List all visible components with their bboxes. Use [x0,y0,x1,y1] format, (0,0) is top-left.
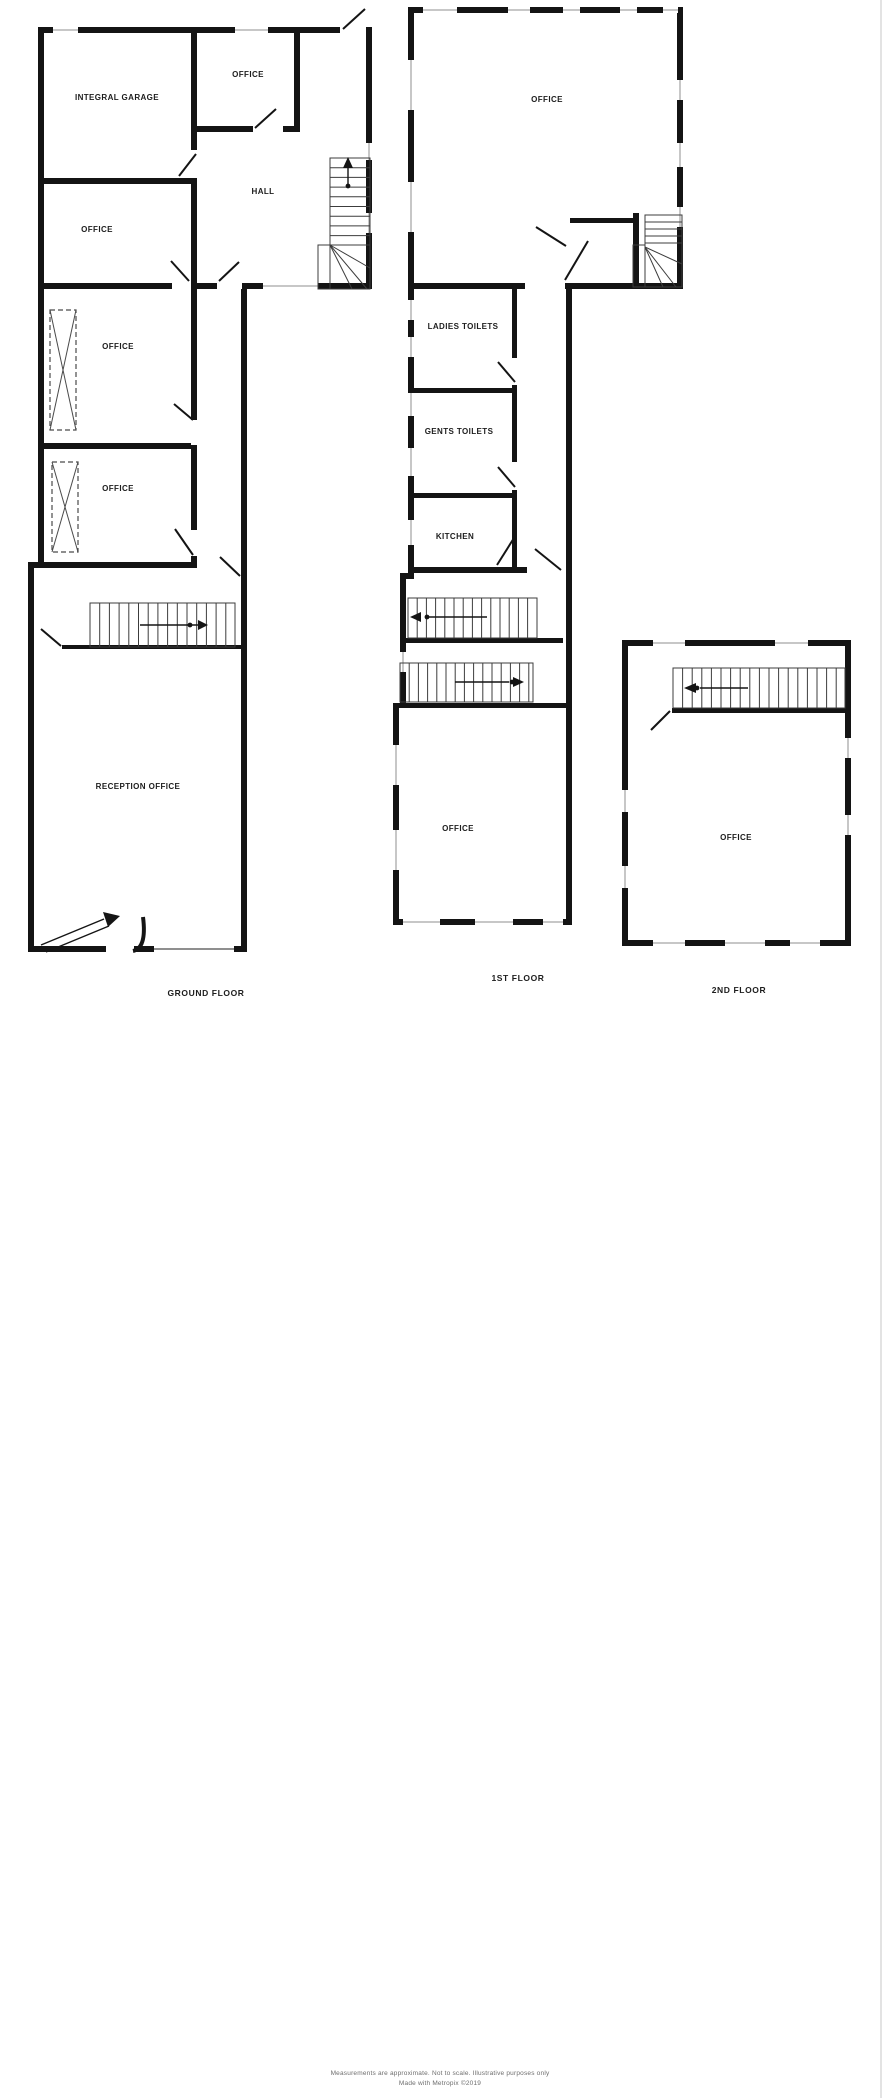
floorplan-drawing: INTEGRAL GARAGE OFFICE HALL OFFICE OFFIC… [0,0,886,2098]
floor-label-ground: GROUND FLOOR [167,988,244,998]
room-label-integral-garage: INTEGRAL GARAGE [75,93,159,102]
room-label-hall: HALL [252,187,275,196]
room-label-kitchen: KITCHEN [436,532,474,541]
floor-label-first: 1ST FLOOR [491,973,544,983]
second-floor-doors [651,711,670,730]
ground-floor-plan: INTEGRAL GARAGE OFFICE HALL OFFICE OFFIC… [28,9,372,998]
ground-floor-doors [41,9,365,951]
room-label-office-4: OFFICE [102,484,134,493]
room-label-1f-office-bottom: OFFICE [442,824,474,833]
first-floor-labels: OFFICE LADIES TOILETS GENTS TOILETS KITC… [425,95,563,983]
first-floor-doors [497,227,588,570]
ground-floor-stairs-landing [90,603,235,647]
room-label-office-3: OFFICE [102,342,134,351]
ground-floor-windows [53,27,372,556]
room-label-office-2: OFFICE [81,225,113,234]
first-floor-stairs-winder [633,215,682,287]
room-label-office-top: OFFICE [232,70,264,79]
first-floor-windows [393,7,683,925]
room-label-ladies-toilets: LADIES TOILETS [428,322,499,331]
ground-floor-stairs-main [318,157,370,289]
room-label-1f-office-top: OFFICE [531,95,563,104]
ground-floor-walls [28,27,372,952]
first-floor-walls [393,7,683,925]
floorplan-page: INTEGRAL GARAGE OFFICE HALL OFFICE OFFIC… [0,0,886,2098]
room-label-2f-office: OFFICE [720,833,752,842]
first-floor-stairs-upper [408,598,537,638]
window-bay-symbols [50,310,78,552]
room-label-gents-toilets: GENTS TOILETS [425,427,494,436]
disclaimer-line-2: Made with Metropix ©2019 [0,2079,880,2089]
room-label-reception-office: RECEPTION OFFICE [96,782,181,791]
disclaimer: Measurements are approximate. Not to sca… [0,2069,880,2088]
first-floor-plan: OFFICE LADIES TOILETS GENTS TOILETS KITC… [393,7,683,983]
first-floor-stairs-lower [400,663,533,702]
disclaimer-line-1: Measurements are approximate. Not to sca… [0,2069,880,2079]
second-floor-labels: OFFICE 2ND FLOOR [712,833,767,995]
second-floor-stairs [673,668,845,708]
floor-label-second: 2ND FLOOR [712,985,767,995]
page-edge-line [880,0,882,2098]
second-floor-plan: OFFICE 2ND FLOOR [622,640,851,995]
